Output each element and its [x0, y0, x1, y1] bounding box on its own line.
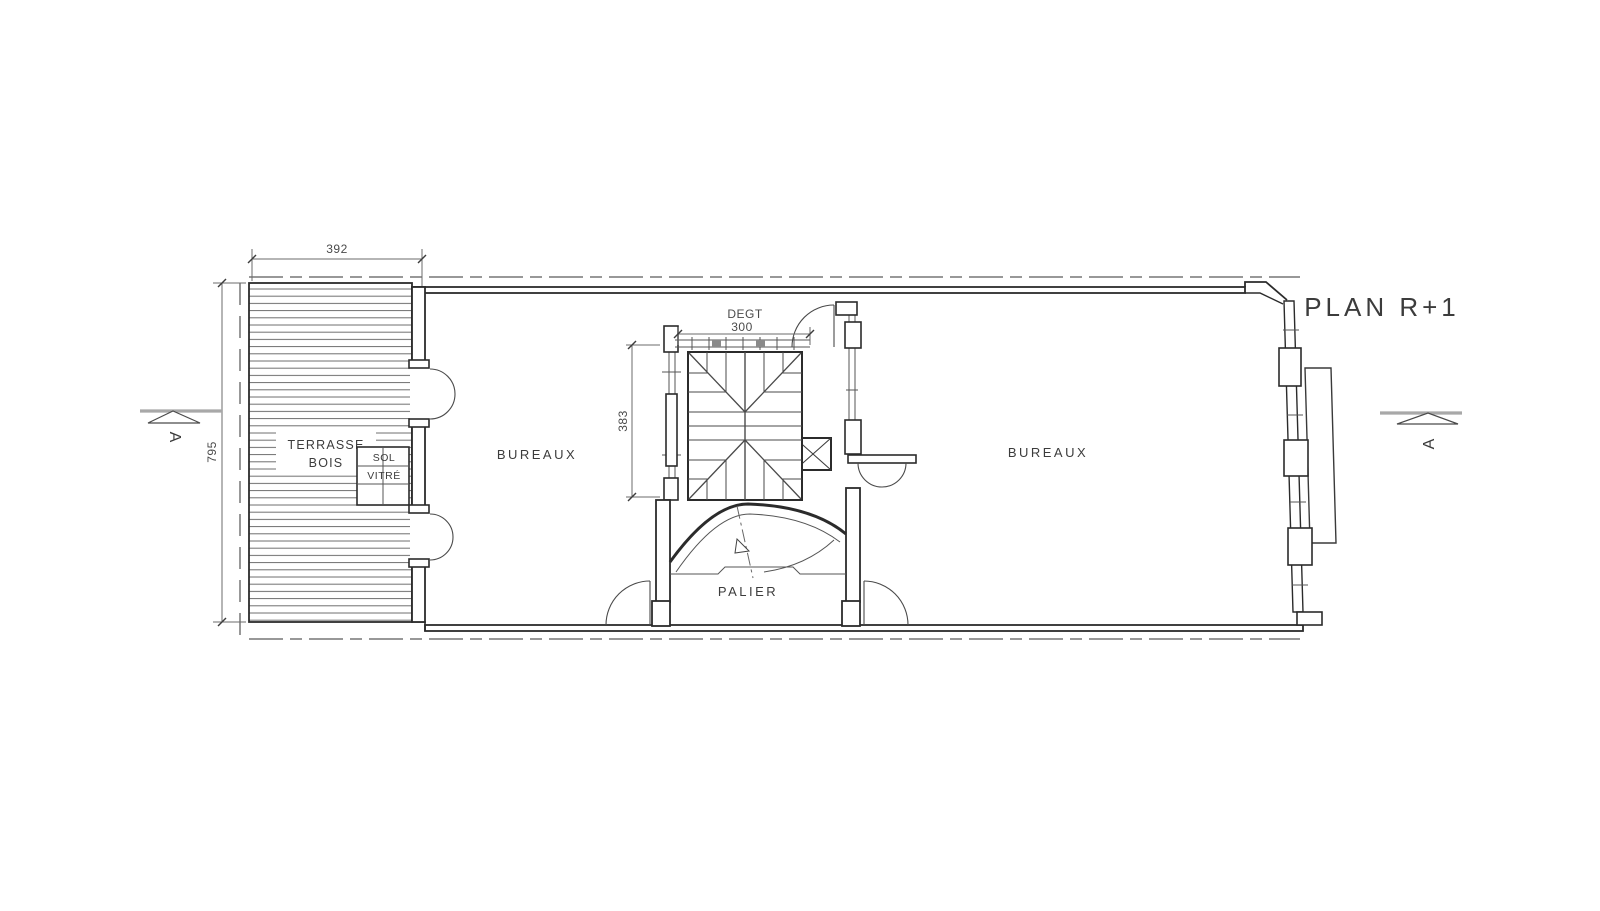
office-right-label: BUREAUX — [1008, 445, 1088, 460]
terrace-area: TERRASSE BOIS SOL VITRÉ — [249, 283, 412, 622]
dimension-392-value: 392 — [326, 242, 348, 256]
stair-pier — [836, 302, 857, 315]
door-jamb — [409, 559, 429, 567]
landing-door-right — [864, 581, 908, 625]
section-label-right: A — [1421, 438, 1438, 449]
floor-plan-drawing: TERRASSE BOIS SOL VITRÉ 392 795 A — [0, 0, 1600, 911]
terrace-door-lower — [430, 514, 453, 560]
landing-door-left — [606, 581, 650, 625]
glass-floor-label-line1: SOL — [373, 452, 396, 464]
terrace-door-upper — [430, 369, 455, 419]
stairwell-label: DEGT — [727, 307, 763, 321]
section-marker-left: A — [140, 411, 222, 443]
dimension-stair-depth: 383 — [616, 341, 660, 501]
floor-plan-sheet: TERRASSE BOIS SOL VITRÉ 392 795 A — [0, 0, 1600, 911]
terrace-label-line2: BOIS — [309, 456, 344, 470]
glass-floor-panel: SOL VITRÉ — [357, 447, 409, 505]
landing-label: PALIER — [718, 584, 778, 599]
section-arrow-right-icon — [1397, 413, 1458, 424]
terrace-label-line1: TERRASSE — [288, 438, 365, 452]
stair-entry-door — [792, 305, 834, 347]
stair-block: DEGT 300 383 — [606, 302, 916, 626]
dimension-300-value: 300 — [731, 320, 753, 334]
section-label-left: A — [166, 432, 183, 443]
north-wall — [412, 287, 1245, 293]
south-east-corner — [1297, 612, 1322, 625]
balcony-ledge — [1305, 368, 1336, 543]
dimension-795-value: 795 — [205, 441, 219, 463]
stairwell — [688, 352, 802, 500]
door-jamb — [409, 505, 429, 513]
landing-wall-left — [656, 500, 670, 602]
west-wall — [412, 287, 425, 622]
stair-pier — [845, 322, 861, 348]
landing-wall-stub-right — [842, 601, 860, 626]
landing-wall-stub-left — [652, 601, 670, 626]
office-left-label: BUREAUX — [497, 447, 577, 462]
right-office-door — [848, 455, 916, 487]
stair-pier — [664, 326, 678, 352]
stair-top-glazing — [675, 337, 810, 350]
south-wall — [425, 625, 1303, 631]
section-trace-arrow-icon — [735, 539, 749, 553]
stair-pier — [845, 420, 861, 454]
landing-arches — [670, 504, 846, 574]
section-arrow-left-icon — [148, 411, 200, 423]
section-marker-right: A — [1380, 413, 1462, 449]
glass-floor-label-line2: VITRÉ — [367, 469, 400, 482]
plan-title: PLAN R+1 — [1304, 292, 1460, 322]
landing-wall-right — [846, 488, 860, 602]
door-jamb — [409, 360, 429, 368]
facade-pier — [1284, 440, 1308, 476]
dimension-383-value: 383 — [616, 410, 630, 432]
stair-pier — [664, 478, 678, 500]
stair-window-frame — [666, 394, 677, 466]
stair-right-partition — [836, 302, 861, 458]
facade-pier — [1279, 348, 1301, 386]
door-jamb — [409, 419, 429, 427]
facade-pier — [1288, 528, 1312, 565]
